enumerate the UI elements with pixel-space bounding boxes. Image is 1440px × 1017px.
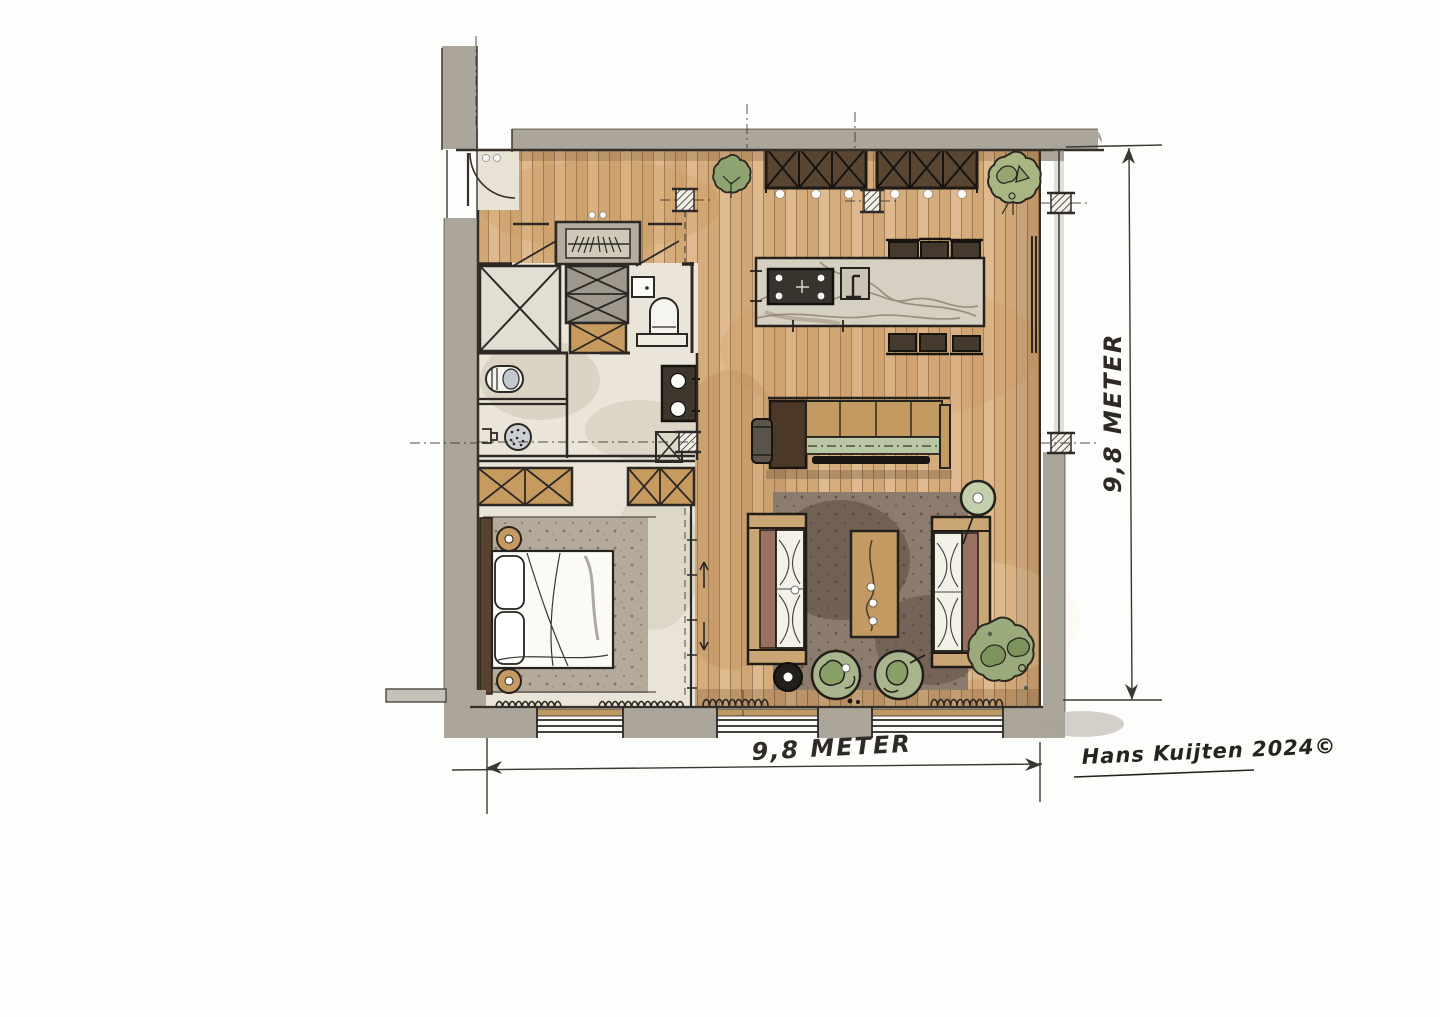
arrowhead-left (486, 761, 502, 774)
wardrobe-right (628, 468, 694, 505)
neighbor-wall-stub (386, 689, 446, 702)
sink-basin (671, 402, 686, 417)
wall-cabinet (632, 277, 654, 297)
candle (869, 599, 877, 607)
bar-stools-bottom (886, 334, 983, 354)
entry-side-panel (447, 150, 477, 218)
candle (867, 583, 875, 591)
unit-shadow (766, 470, 952, 479)
wall-stub-top (442, 46, 477, 149)
wall-top (512, 129, 1098, 150)
speaker (752, 419, 772, 463)
dimension-label-right: 9,8 METER (1099, 333, 1127, 493)
door-jambs (477, 129, 512, 152)
wall-left (444, 218, 478, 692)
lounge-chair-2 (875, 651, 925, 699)
window-segments (537, 706, 1003, 738)
dimension-line-bottom (452, 764, 1042, 770)
wall-right-lower (1043, 452, 1065, 710)
island-sink (841, 268, 869, 299)
floor-plan-sketch-page: 9,8 METER 9,8 METER Hans Kuijten 2024© (0, 0, 1440, 1017)
column (1047, 193, 1075, 213)
wall-pier (478, 706, 537, 738)
floor-plan-drawing: 9,8 METER 9,8 METER Hans Kuijten 2024© (0, 0, 1440, 1017)
headboard (480, 518, 492, 694)
floor-dot (848, 699, 853, 704)
lounge-chair-1 (812, 651, 860, 699)
cushion-highlight (791, 586, 799, 594)
signature-underline (1074, 770, 1254, 777)
wall-pier (623, 706, 717, 738)
ceiling-light (483, 155, 490, 162)
wall-shadow-bottom (695, 689, 1040, 707)
signature-text: Hans Kuijten 2024© (1081, 734, 1337, 769)
rain-shower-head (505, 424, 531, 450)
nightstand-lamp (505, 677, 513, 685)
sofa-backrest (760, 530, 776, 648)
toilet-shelf (637, 334, 687, 346)
nightstand-lamp (505, 535, 513, 543)
wall-smudge (1040, 711, 1124, 737)
lamp-bulb (973, 493, 983, 503)
dimension-line-right (1129, 148, 1132, 700)
sideboard-dark-cabinet (770, 401, 806, 468)
sofa-left (748, 514, 806, 664)
ceiling-light (494, 155, 501, 162)
candle (869, 617, 877, 625)
sink-basin (671, 374, 686, 389)
cabinet-knob (645, 286, 649, 290)
wc-lid (503, 369, 519, 389)
toilet (650, 298, 678, 334)
bar-stools-top (886, 239, 983, 258)
ceiling-light (589, 212, 596, 219)
wall-shadow-right (1016, 150, 1040, 707)
tv-screen (812, 456, 930, 464)
sideboard-wood-top (806, 401, 942, 437)
side-table-highlight (784, 673, 793, 682)
ceiling-light (600, 212, 607, 219)
sideboard-side-panel (940, 405, 950, 468)
pillow (495, 612, 524, 664)
dimension-label-bottom: 9,8 METER (751, 730, 913, 766)
pillow (495, 556, 524, 609)
floor-dot (856, 700, 860, 704)
